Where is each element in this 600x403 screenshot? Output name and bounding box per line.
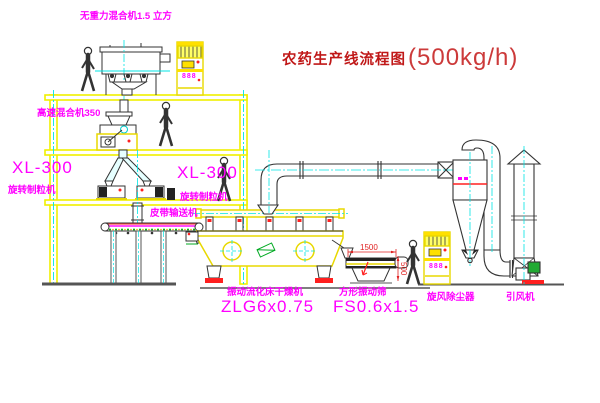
fluid-bed-dryer bbox=[186, 209, 348, 283]
control-cabinet-1 bbox=[177, 42, 203, 95]
high-speed-mixer bbox=[97, 100, 137, 150]
label-granulator-left-model: XL-300 bbox=[12, 159, 73, 176]
title-capacity: (500kg/h) bbox=[408, 44, 518, 72]
worker-figure bbox=[82, 47, 94, 91]
flow-diagram-canvas: 农药生产线流程图 (500kg/h) 无重力混合机1.5 立方 高速混合机350… bbox=[0, 0, 600, 403]
stack-and-fan bbox=[508, 146, 544, 286]
label-high-speed-mixer: 高速混合机350 bbox=[37, 109, 100, 119]
worker-figure bbox=[407, 240, 419, 284]
cyclone bbox=[453, 140, 513, 278]
cabinet2-display: 888 bbox=[429, 263, 444, 270]
diagram-title: 农药生产线流程图 (500kg/h) bbox=[282, 44, 518, 72]
exhaust-duct bbox=[255, 150, 470, 214]
dimension-height: 500 bbox=[399, 262, 407, 275]
label-granulator-right-name: 旋转制粒机 bbox=[180, 193, 228, 203]
label-granulator-left-name: 旋转制粒机 bbox=[8, 186, 56, 196]
granulators bbox=[96, 181, 175, 200]
cabinet1-display: 888 bbox=[182, 73, 197, 80]
label-granulator-right-model: XL-300 bbox=[177, 164, 238, 181]
label-belt-conveyor: 皮带输送机 bbox=[150, 209, 198, 219]
label-gravity-mixer: 无重力混合机1.5 立方 bbox=[80, 12, 172, 22]
dimension-length: 1500 bbox=[360, 244, 378, 252]
label-dryer-model: ZLG6x0.75 bbox=[221, 298, 314, 315]
label-cyclone: 旋风除尘器 bbox=[427, 293, 475, 303]
label-fan: 引风机 bbox=[506, 293, 535, 303]
title-text: 农药生产线流程图 bbox=[282, 48, 406, 69]
worker-figure bbox=[160, 102, 172, 146]
control-cabinet-2 bbox=[424, 232, 450, 284]
label-sieve-model: FS0.6x1.5 bbox=[333, 298, 420, 315]
